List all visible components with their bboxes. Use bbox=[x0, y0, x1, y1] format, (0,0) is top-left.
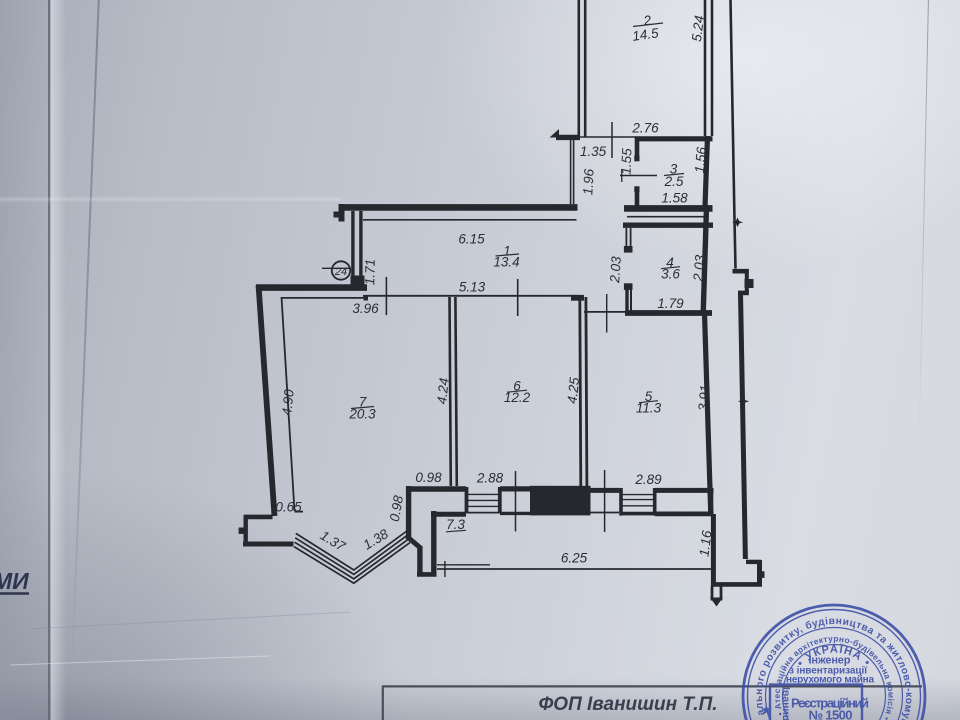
svg-text:Іванишин: Іванишин bbox=[780, 687, 792, 720]
svg-text:4.90: 4.90 bbox=[279, 388, 297, 416]
svg-text:2.88: 2.88 bbox=[476, 471, 504, 486]
svg-text:1.55: 1.55 bbox=[619, 148, 635, 175]
svg-text:1.35: 1.35 bbox=[580, 144, 607, 159]
svg-text:1.79: 1.79 bbox=[657, 296, 684, 311]
svg-text:7.3: 7.3 bbox=[446, 517, 465, 532]
svg-text:1.38: 1.38 bbox=[361, 526, 392, 553]
svg-text:2.76: 2.76 bbox=[631, 121, 659, 136]
svg-text:0.65: 0.65 bbox=[275, 500, 302, 515]
svg-text:20.3: 20.3 bbox=[348, 407, 376, 422]
svg-text:МИ: МИ bbox=[0, 568, 29, 594]
svg-text:№ 1500: № 1500 bbox=[809, 708, 853, 720]
svg-text:24: 24 bbox=[334, 266, 347, 278]
svg-text:3.6: 3.6 bbox=[661, 267, 680, 282]
svg-text:5.24: 5.24 bbox=[689, 15, 707, 43]
svg-text:1.71: 1.71 bbox=[362, 259, 377, 286]
svg-text:13.4: 13.4 bbox=[493, 255, 519, 270]
svg-text:2.03: 2.03 bbox=[690, 254, 707, 283]
svg-text:1.96: 1.96 bbox=[580, 168, 596, 196]
svg-text:4.25: 4.25 bbox=[564, 376, 582, 404]
svg-text:2.89: 2.89 bbox=[634, 472, 662, 487]
svg-text:1.58: 1.58 bbox=[661, 191, 688, 206]
svg-text:0.98: 0.98 bbox=[387, 494, 406, 523]
svg-text:5.13: 5.13 bbox=[459, 280, 486, 295]
svg-text:12.2: 12.2 bbox=[504, 390, 531, 405]
svg-text:14.5: 14.5 bbox=[631, 25, 660, 44]
svg-text:1.56: 1.56 bbox=[692, 146, 709, 174]
svg-text:6.25: 6.25 bbox=[561, 551, 588, 566]
svg-text:11.3: 11.3 bbox=[636, 401, 662, 416]
svg-text:3.91: 3.91 bbox=[695, 384, 712, 411]
svg-text:0.98: 0.98 bbox=[415, 470, 442, 485]
svg-text:6.15: 6.15 bbox=[458, 232, 485, 247]
svg-text:ФОП Іванишин Т.П.: ФОП Іванишин Т.П. bbox=[538, 694, 717, 715]
svg-text:2.03: 2.03 bbox=[607, 255, 624, 284]
svg-text:3.96: 3.96 bbox=[352, 301, 379, 316]
svg-text:2.5: 2.5 bbox=[664, 174, 684, 189]
svg-text:4.24: 4.24 bbox=[434, 377, 452, 405]
